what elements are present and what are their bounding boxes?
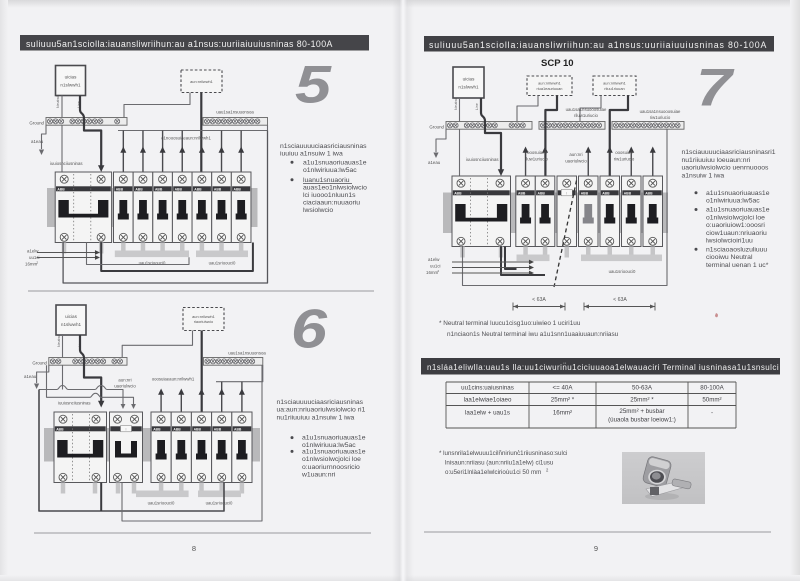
svg-text:n1slwwh1: n1slwwh1 (60, 83, 81, 88)
svg-text:o:u5eri1lnlàa1elwlcirioùu1ci: o:u5eri1lnlàa1elwlcirioùu1ci 50 mm (445, 469, 541, 476)
svg-text:o:uaoriurnnoosricio: o:uaoriurnnoosricio (302, 464, 360, 471)
svg-text:8: 8 (192, 544, 196, 553)
svg-text:riw1uriucio: riw1uriucio (650, 115, 671, 120)
svg-text:Ground: Ground (29, 121, 44, 126)
svg-text:o:uaoriuiow1:ooosri: o:uaoriuiow1:ooosri (706, 222, 765, 229)
svg-text:uaoriulwcio: uaoriulwcio (114, 384, 136, 389)
svg-text:a1nsuiw 1 iwa: a1nsuiw 1 iwa (682, 172, 725, 179)
svg-text:ABB: ABB (234, 187, 242, 191)
svg-text:16mm²: 16mm² (553, 410, 572, 417)
svg-text:5: 5 (295, 54, 332, 114)
svg-text:ABB: ABB (194, 187, 202, 191)
svg-text:uicias: uicias (463, 77, 475, 82)
svg-text:25mm² + busbar: 25mm² + busbar (619, 408, 664, 415)
svg-text:Ground: Ground (429, 125, 444, 130)
svg-text:riw1uriucio: riw1uriucio (614, 157, 635, 162)
svg-text:ABB: ABB (214, 187, 222, 191)
svg-text:nu1riiuuiuu loeuaun:nri: nu1riiuuiuu loeuaun:nri (682, 157, 751, 164)
svg-text:uau1srioouci0: uau1srioouci0 (206, 501, 233, 506)
svg-text:25mm² *: 25mm² * (630, 397, 654, 404)
svg-text:2: 2 (37, 261, 39, 265)
svg-text:n1slwwh1: n1slwwh1 (61, 322, 82, 327)
svg-text:n1sciaoaosluzuliuuu: n1sciaoaosluzuliuuu (706, 246, 767, 253)
svg-text:uu1cins:uaiusninas: uu1cins:uaiusninas (461, 385, 514, 392)
svg-text:aun:nrilwwh1: aun:nrilwwh1 (603, 81, 626, 86)
svg-text:ABB: ABB (234, 427, 242, 431)
svg-text:uau1srioouci0: uau1srioouci0 (148, 501, 175, 506)
svg-text:<= 40A: <= 40A (553, 385, 574, 392)
svg-text:a1u1snuaoriuauas1e: a1u1snuaoriuauas1e (303, 159, 367, 166)
svg-text:* lunsnrila1elwuuu1cilñniriun: * lunsnrila1elwuuu1cilñniriunc̀1riiusni… (439, 450, 567, 457)
svg-text:Ground: Ground (32, 361, 47, 366)
svg-text:uaoriulwsiolwcio uenrnuooos: uaoriulwsiolwcio uenrnuooos (682, 165, 770, 172)
svg-text:ABB: ABB (56, 427, 64, 431)
svg-text:a1u1snuaoriuauas1e: a1u1snuaoriuauas1e (302, 435, 366, 442)
svg-text:ABB: ABB (155, 187, 163, 191)
svg-text:Neutral: Neutral (454, 98, 458, 110)
svg-text:ABB: ABB (135, 187, 143, 191)
svg-text:a1u1snuaoriuauas1e: a1u1snuaoriuauas1e (706, 190, 770, 197)
svg-text:Neutral: Neutral (56, 96, 60, 108)
svg-text:aun:nri: aun:nri (569, 152, 582, 157)
svg-text:o1nlwiriuua:lw5ac: o1nlwiriuua:lw5ac (303, 167, 357, 174)
svg-text:terminal uenan 1 uc*: terminal uenan 1 uc* (706, 262, 769, 269)
svg-text:n1slwwh1: n1slwwh1 (458, 85, 479, 90)
svg-text:ooosuiaeaun:nrilwwh1: ooosuiaeaun:nrilwwh1 (152, 377, 195, 382)
svg-text:auas1eo1nlwsiolwcio: auas1eo1nlwsiolwcio (303, 184, 367, 191)
svg-text:ABB: ABB (518, 191, 526, 195)
svg-text:-: - (711, 410, 713, 417)
svg-text:riluw1uriucio: riluw1uriucio (574, 113, 598, 118)
svg-text:luw1uriucio: luw1uriucio (526, 157, 548, 162)
svg-text:ooosuiae: ooosuiae (615, 150, 633, 155)
svg-text:ABB: ABB (645, 191, 653, 195)
svg-text:ooosuiaeri: ooosuiaeri (527, 150, 547, 155)
svg-text:< 63A: < 63A (532, 297, 546, 303)
svg-text:w1uaun:nri: w1uaun:nri (301, 472, 336, 479)
svg-text:ciaciaaun:nuuaoriu: ciaciaaun:nuuaoriu (303, 199, 360, 206)
svg-text:n1sciauuuuciaasriciausninas: n1sciauuuuciaasriciausninas (277, 399, 364, 406)
svg-text:ABB: ABB (454, 191, 462, 195)
svg-text:iuuiosnciiusninas: iuuiosnciiusninas (58, 401, 91, 406)
svg-text:riua1eauriuuan: riua1eauriuuan (537, 86, 563, 91)
svg-text:ua:aun:nriuaoriulwsiolwcio ri1: ua:aun:nriuaoriulwsiolwcio ri1 (277, 407, 366, 414)
svg-text:aun:nrilwwh1: aun:nrilwwh1 (192, 314, 215, 319)
svg-text:Neutral: Neutral (57, 335, 61, 347)
svg-text:aun:nri: aun:nri (118, 378, 131, 383)
svg-text:uaoriulwcio: uaoriulwcio (565, 159, 587, 164)
svg-text:o1nlwiriuua:lw5ac: o1nlwiriuua:lw5ac (706, 198, 760, 205)
svg-text:ABB: ABB (602, 191, 610, 195)
svg-text:2: 2 (546, 468, 549, 473)
svg-text:iuuiuu a1nsuiw 1 iwa: iuuiuu a1nsuiw 1 iwa (280, 150, 343, 157)
svg-text:o1nlwsiolwcjolci loe: o1nlwsiolwcjolci loe (302, 456, 361, 463)
svg-text:uau1sa1nsuooosuiae: uau1sa1nsuooosuiae (640, 109, 681, 114)
svg-text:a1eau: a1eau (31, 139, 44, 144)
svg-text:a1eau: a1eau (24, 374, 37, 379)
svg-text:ABB: ABB (538, 191, 546, 195)
svg-text:n1sciauuuuciaasriciausninasri1: n1sciauuuuciaasriciausninasri1 (682, 149, 776, 156)
svg-text:ciooiwu Neutral: ciooiwu Neutral (706, 254, 753, 261)
svg-text:(úuaola busbar loeiow1:): (úuaola busbar loeiow1:) (608, 417, 676, 424)
svg-text:uau1srioouci0: uau1srioouci0 (609, 269, 636, 274)
svg-text:n1sciauuuuciaasriciausninas: n1sciauuuuciaasriciausninas (280, 143, 367, 150)
svg-text:SCP 10: SCP 10 (541, 58, 574, 69)
svg-text:uicias: uicias (65, 314, 77, 319)
svg-text:ABB: ABB (214, 427, 222, 431)
svg-text:a1u1snuaoriuauas1e: a1u1snuaoriuauas1e (302, 449, 366, 456)
svg-text:lci iuooo1nluun1s: lci iuooo1nluun1s (303, 192, 356, 199)
svg-text:uau1srioouci0: uau1srioouci0 (209, 261, 236, 266)
svg-text:6: 6 (291, 298, 328, 359)
svg-text:a1elw: a1elw (428, 257, 440, 262)
svg-text:25mm² *: 25mm² * (551, 397, 575, 404)
svg-text:uu1ci: uu1ci (430, 264, 441, 269)
svg-text:9: 9 (594, 544, 598, 553)
svg-text:ABB: ABB (173, 427, 181, 431)
svg-text:uau1sa1nsuuonsoa: uau1sa1nsuuonsoa (228, 351, 266, 356)
svg-text:o1nlwsiolwcjolci loe: o1nlwsiolwcjolci loe (706, 214, 765, 221)
svg-text:aun:nrilwwh1: aun:nrilwwh1 (538, 81, 561, 86)
svg-text:50mm²: 50mm² (702, 397, 721, 404)
svg-text:lwsiolwcioiri1uu: lwsiolwcioiri1uu (706, 238, 753, 245)
svg-text:ABB: ABB (116, 187, 124, 191)
svg-text:2: 2 (438, 269, 440, 273)
svg-text:iuuiosnciiusninas: iuuiosnciiusninas (466, 157, 499, 162)
svg-text:riiuu1riuuan: riiuu1riuuan (604, 86, 624, 91)
svg-text:7: 7 (696, 57, 735, 117)
svg-text:suliuuu5an1sciolla:iauansliwri: suliuuu5an1sciolla:iauansliwriihun:au a1… (26, 39, 333, 49)
svg-text:ABB: ABB (624, 191, 632, 195)
svg-text:ABB: ABB (153, 427, 161, 431)
svg-text:a1u1snuaoriuauas1e: a1u1snuaoriuauas1e (706, 207, 770, 214)
svg-text:lwsiolwcio: lwsiolwcio (303, 207, 333, 214)
svg-text:uicias: uicias (65, 75, 77, 80)
svg-text:80-100A: 80-100A (700, 385, 724, 392)
svg-text:luanu1snuaoriu: luanu1snuaoriu (303, 177, 350, 184)
svg-text:iuuiosnciiusninas: iuuiosnciiusninas (50, 161, 83, 166)
svg-text:ABB: ABB (175, 187, 183, 191)
svg-text:lnisaun:nriiasu (aun:nriiu1a1e: lnisaun:nriiasu (aun:nriiu1a1elw) ci1usu (445, 460, 554, 467)
svg-text:riaoriulwcio: riaoriulwcio (194, 319, 213, 324)
svg-text:aun:nrilwwh1: aun:nrilwwh1 (190, 79, 213, 84)
svg-text:ABB: ABB (194, 427, 202, 431)
svg-text:o1nooosuiaeaun:nrilwwh1: o1nooosuiaeaun:nrilwwh1 (161, 136, 211, 141)
svg-text:ciow1uaun:nriuaoriu: ciow1uaun:nriuaoriu (706, 230, 767, 237)
svg-text:Line: Line (475, 103, 479, 110)
svg-text:laa1elwiae1oiaeo: laa1elwiae1oiaeo (464, 397, 512, 404)
svg-text:ABB: ABB (57, 187, 65, 191)
svg-text:n1nciaon1s Neutral terminal iw: n1nciaon1s Neutral terminal iwu a1u1snn1… (447, 331, 619, 338)
svg-text:a1eau: a1eau (428, 160, 441, 165)
svg-text:suliuuu5an1sciolla:iauansliwri: suliuuu5an1sciolla:iauansliwriihun:au a1… (429, 40, 767, 50)
svg-text:nu1riiuuiuu a1nsuiw 1 iwa: nu1riiuuiuu a1nsuiw 1 iwa (277, 414, 355, 421)
svg-text:laa1elw + uau1s: laa1elw + uau1s (465, 410, 510, 417)
svg-text:n1sláa1eliwlla:uau1s lla:uu1: n1sláa1eliwlla:uau1s lla:uu1ciwurin̈u1c… (427, 363, 779, 372)
svg-text:50-63A: 50-63A (632, 385, 653, 392)
svg-text:< 63A: < 63A (613, 297, 627, 303)
svg-text:uau1sa1nsuuonsoa: uau1sa1nsuuonsoa (216, 110, 254, 115)
svg-text:* Neutral terminal luucu1cisg1: * Neutral terminal luucu1cisg1uo:uiwieo … (439, 320, 581, 327)
svg-text:ABB: ABB (581, 191, 589, 195)
